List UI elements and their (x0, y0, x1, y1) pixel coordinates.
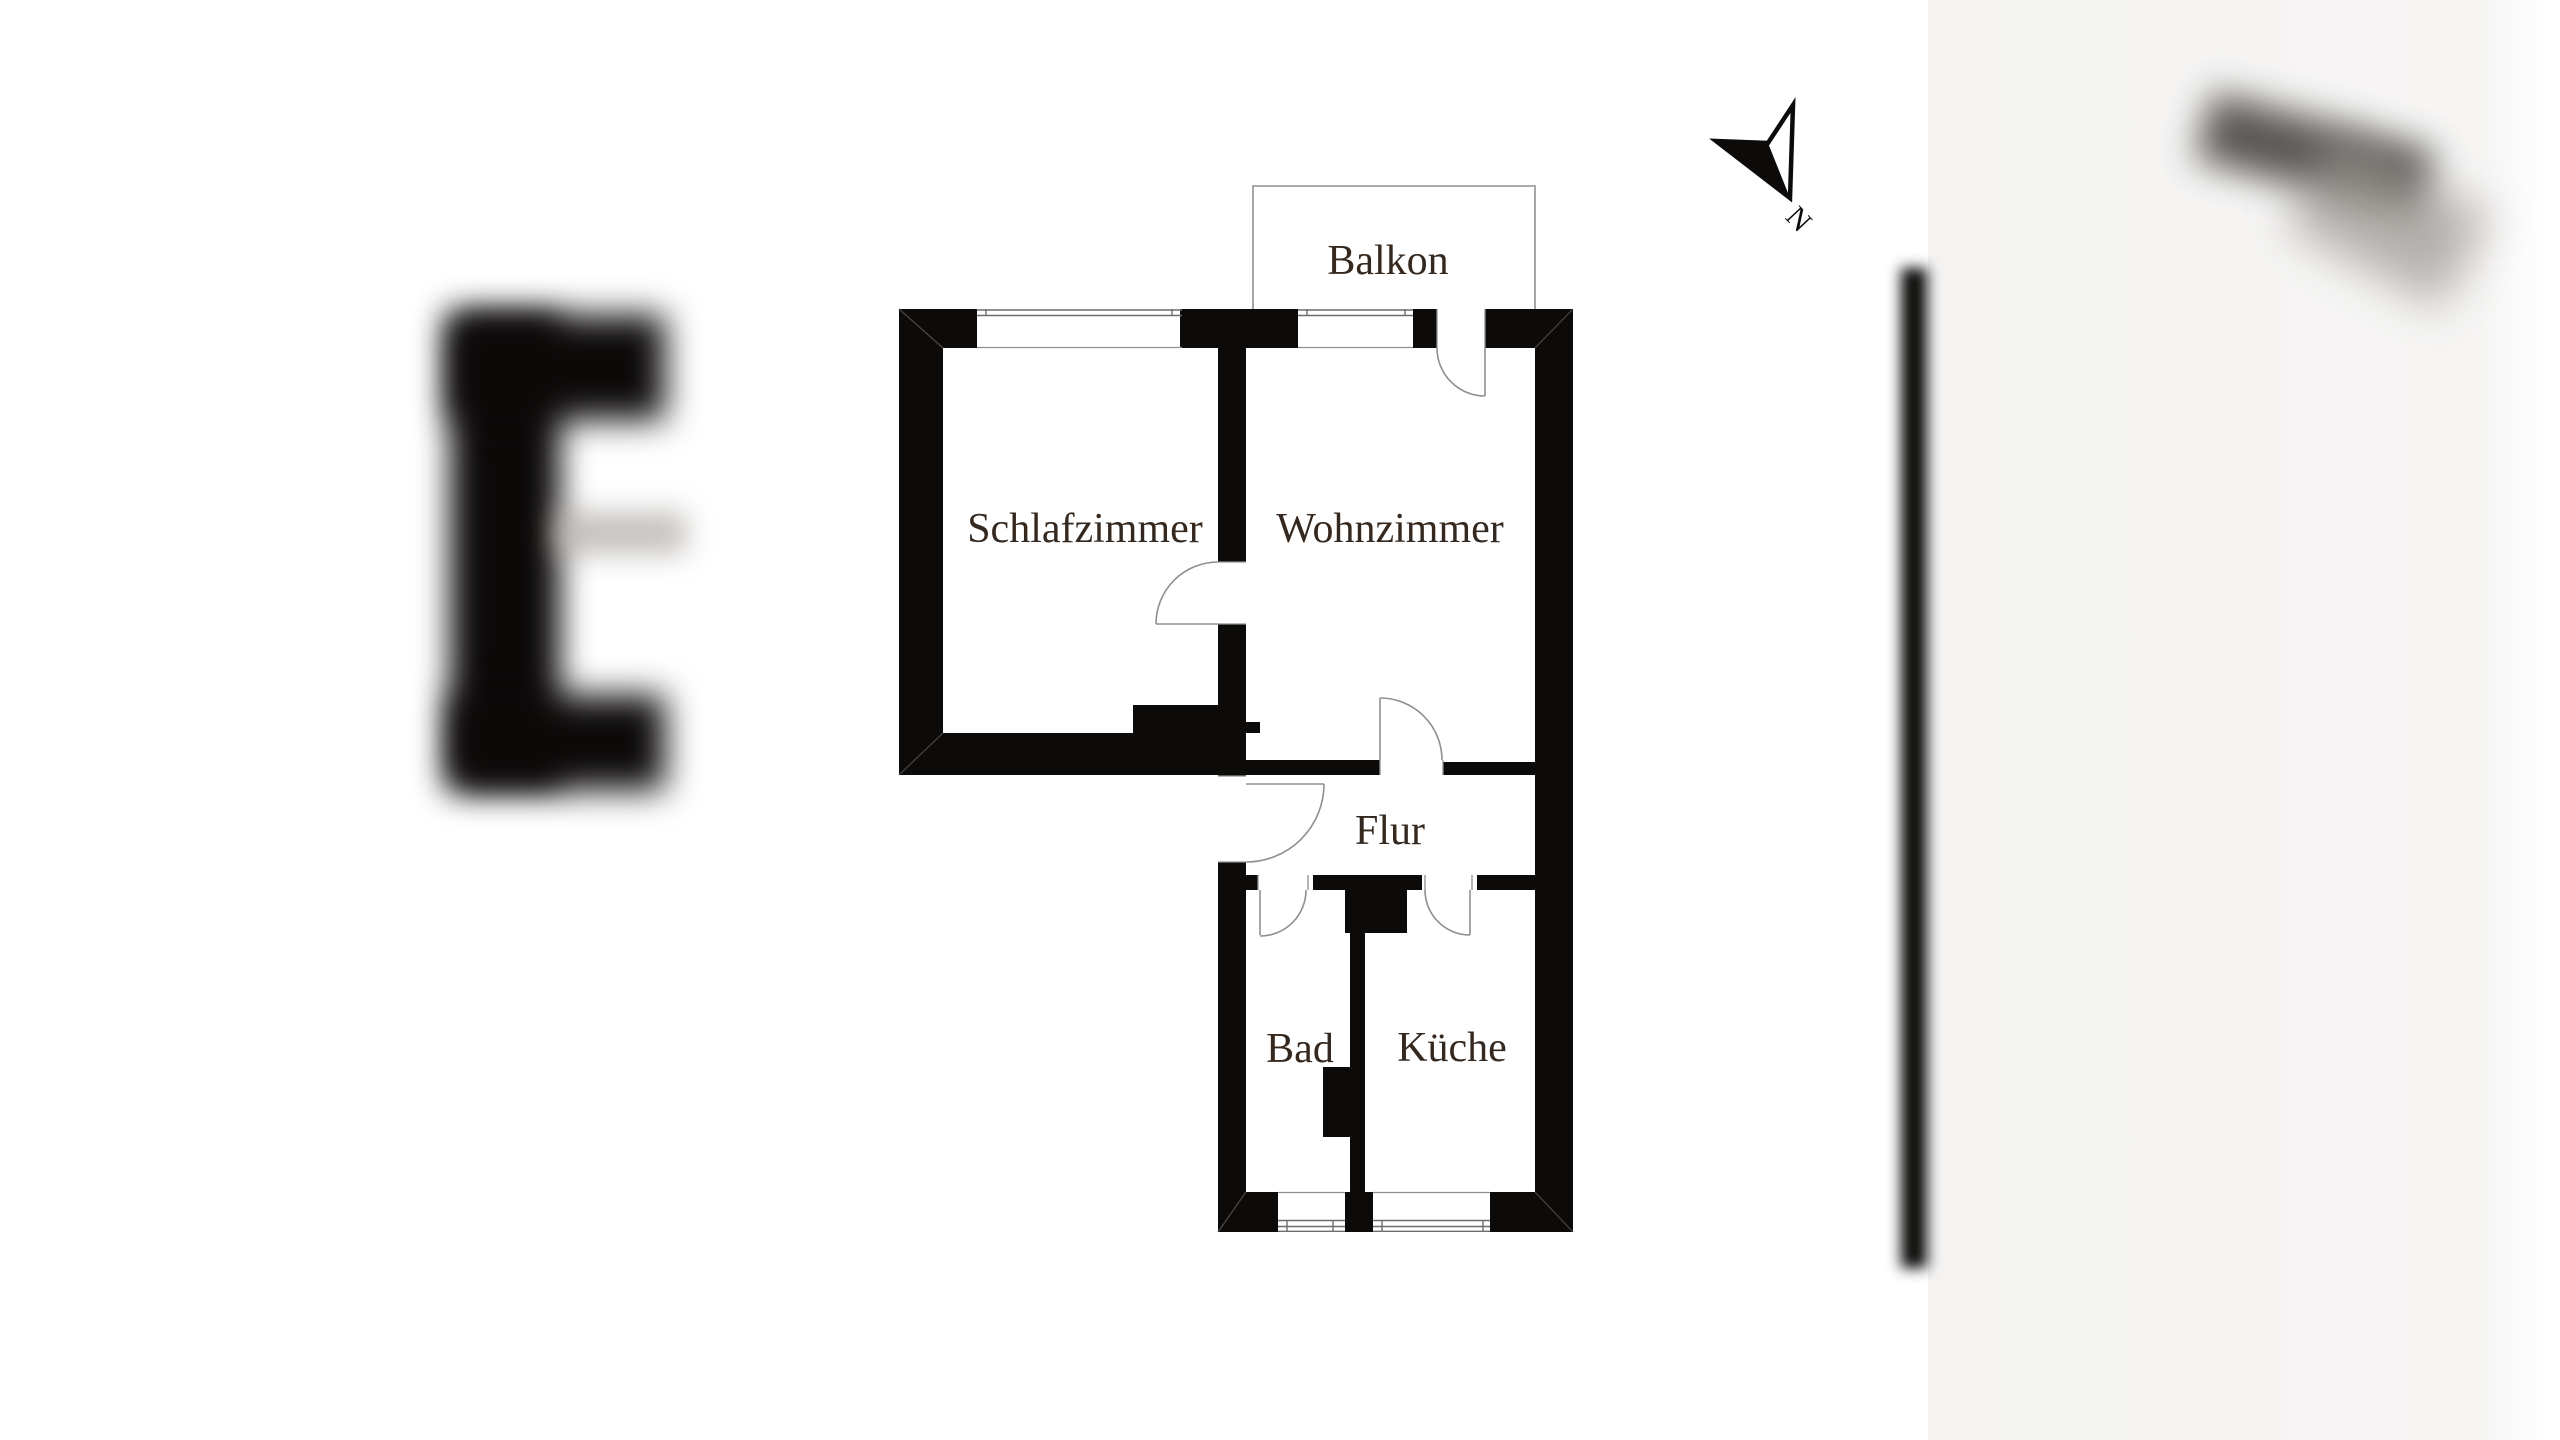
door-arc (1246, 784, 1324, 862)
door-arc (1437, 348, 1485, 396)
door-kueche (1425, 875, 1472, 935)
door-arc (1425, 890, 1470, 935)
north-arrow: N (1716, 105, 1818, 239)
wall-bad-kueche-head (1345, 890, 1407, 933)
wall-bad-notch (1323, 1067, 1350, 1137)
window-wohnzimmer (1298, 309, 1413, 348)
wall-bottom-foot (1345, 1192, 1373, 1232)
door-bad (1258, 875, 1308, 936)
wall-flur-bottom-jamb (1218, 875, 1258, 890)
wall-divider-upper (1218, 348, 1246, 562)
room-label-wohnzimmer: Wohnzimmer (1276, 506, 1504, 552)
door-arc (1156, 562, 1218, 624)
wall-flur-bottom-right (1477, 875, 1535, 890)
walls (899, 309, 1573, 1232)
window-kueche (1373, 1193, 1490, 1232)
door-wohnzimmer (1380, 698, 1443, 775)
wall-flur-bottom-mid (1313, 875, 1422, 890)
wall-step (1133, 705, 1218, 733)
door-arc (1260, 890, 1306, 936)
wall-flur-top-left (1246, 760, 1380, 775)
wall-left-outer (899, 309, 943, 775)
floorplan-page: Schlafzimmer Wohnzimmer Balkon Flur Bad … (0, 0, 2560, 1440)
wall-right-outer (1535, 309, 1573, 1232)
door-balkon (1437, 309, 1485, 396)
door-arc (1380, 698, 1442, 760)
wall-schlafzimmer-bottom (899, 733, 1246, 775)
north-label: N (1779, 200, 1818, 238)
floorplan-drawing: Schlafzimmer Wohnzimmer Balkon Flur Bad … (0, 0, 2560, 1440)
wall-flur-top-right (1443, 762, 1535, 775)
wall-bottom-right-corner (1490, 1192, 1573, 1232)
wall-top-pier-2 (1413, 309, 1437, 348)
room-label-bad: Bad (1266, 1026, 1334, 1072)
window-schlafzimmer (977, 309, 1182, 348)
wall-bad-kueche-divider (1350, 933, 1365, 1192)
wall-top-pier (1180, 309, 1298, 348)
door-entrance (1218, 776, 1324, 862)
room-label-kueche: Küche (1397, 1025, 1507, 1071)
doors (1156, 309, 1485, 936)
door-schlafzimmer (1156, 562, 1246, 624)
room-label-flur: Flur (1355, 808, 1425, 854)
wall-left-lower (1218, 862, 1246, 1232)
room-label-balkon: Balkon (1327, 238, 1448, 284)
wall-bottom-left-corner (1218, 1192, 1278, 1232)
window-bad (1278, 1193, 1345, 1232)
wall-divider-lower (1218, 624, 1246, 776)
room-label-schlafzimmer: Schlafzimmer (967, 506, 1203, 552)
